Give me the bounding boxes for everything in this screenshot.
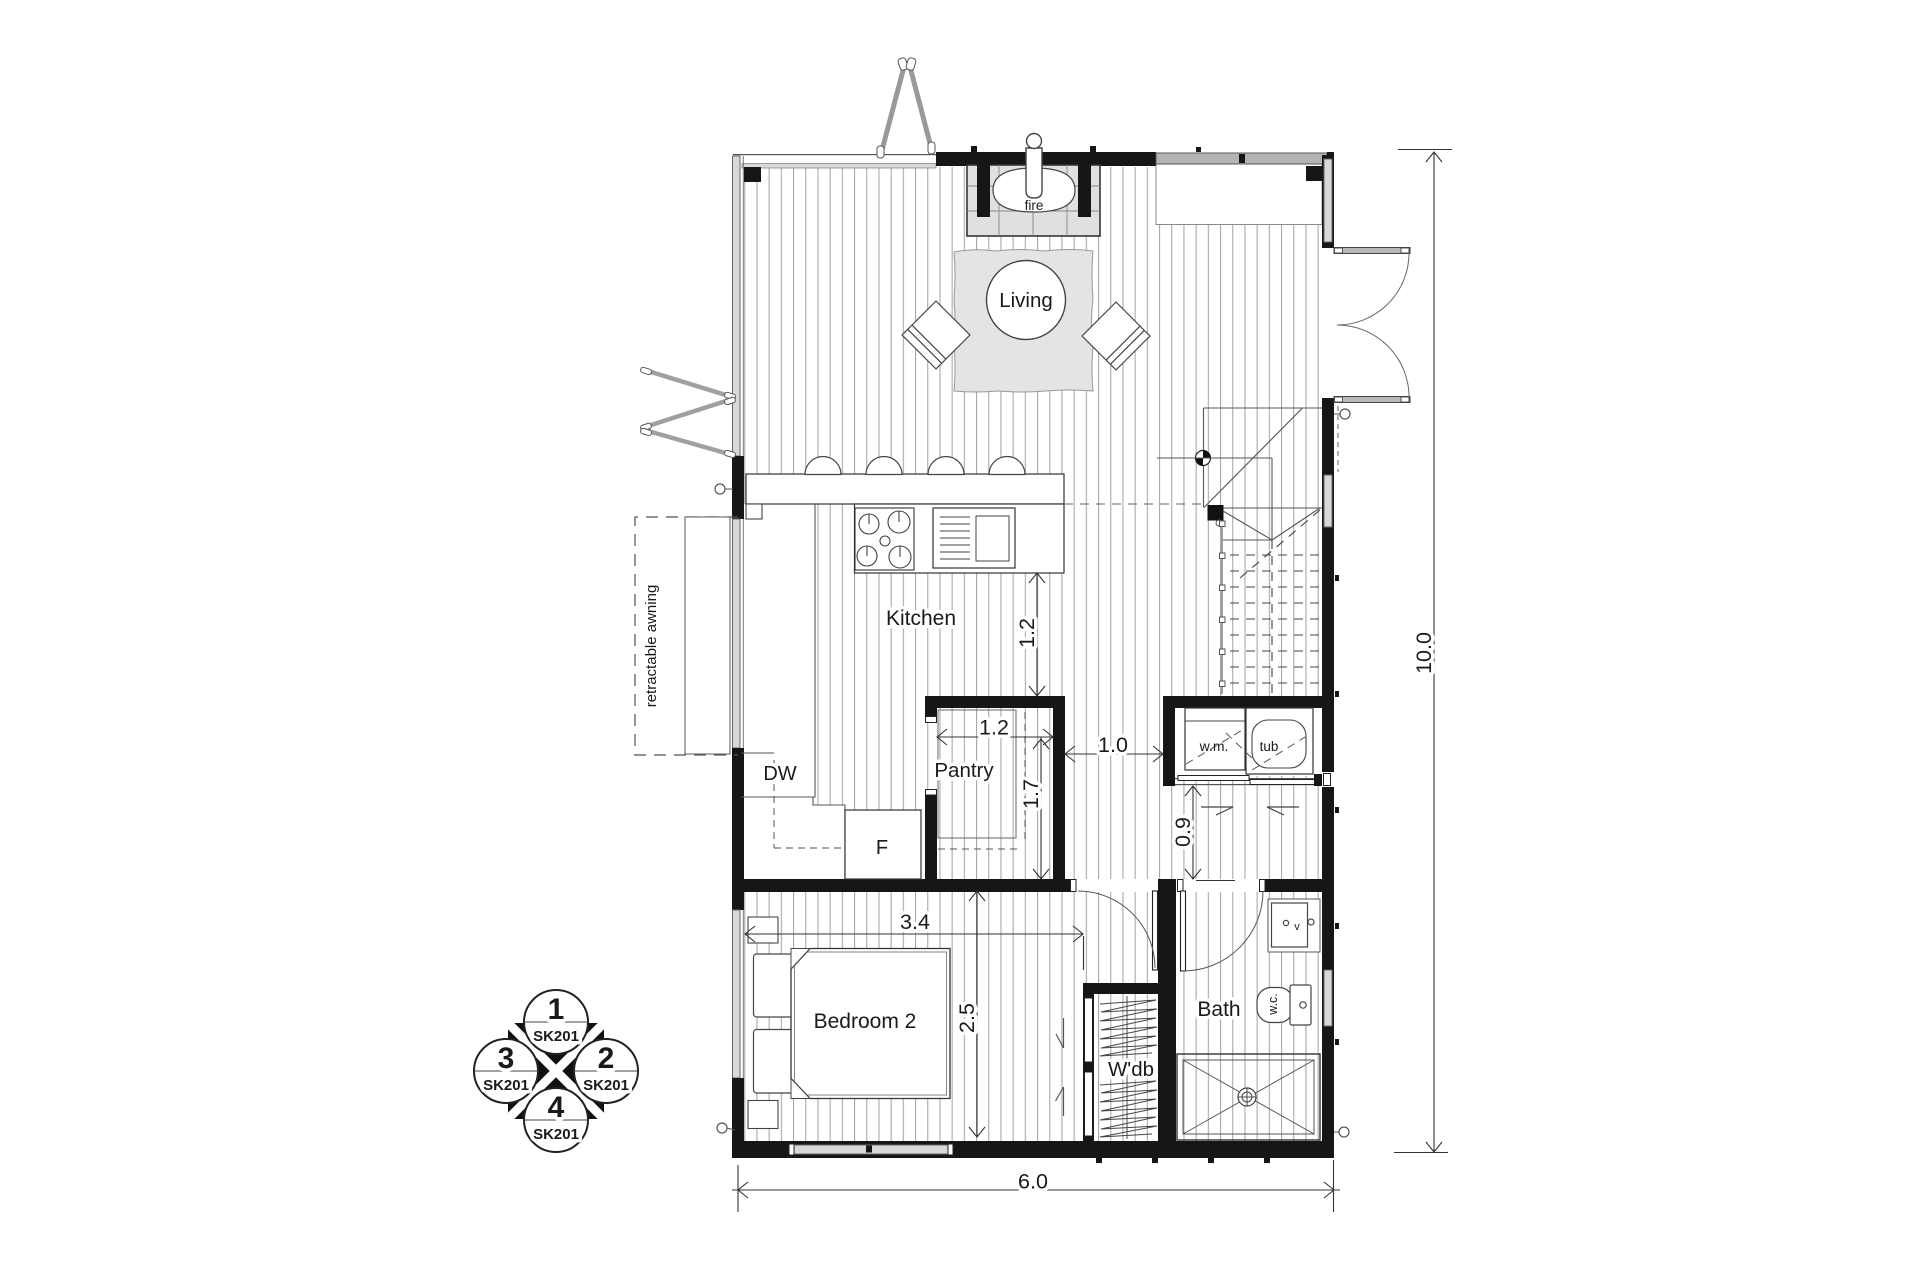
svg-text:fire: fire xyxy=(1025,198,1044,213)
svg-text:v: v xyxy=(1294,921,1300,933)
svg-text:1: 1 xyxy=(548,993,565,1026)
svg-text:3.4: 3.4 xyxy=(900,910,930,934)
svg-text:F: F xyxy=(876,837,888,859)
svg-text:DW: DW xyxy=(763,763,796,785)
svg-text:Kitchen: Kitchen xyxy=(886,607,956,630)
svg-text:SK201: SK201 xyxy=(533,1126,579,1143)
svg-text:4: 4 xyxy=(548,1091,565,1124)
svg-text:SK201: SK201 xyxy=(533,1028,579,1045)
svg-text:1.2: 1.2 xyxy=(979,716,1009,740)
svg-text:Pantry: Pantry xyxy=(934,759,994,782)
svg-text:tub: tub xyxy=(1260,739,1279,754)
svg-text:1.7: 1.7 xyxy=(1019,779,1043,809)
svg-text:w.m.: w.m. xyxy=(1199,738,1229,754)
svg-text:Living: Living xyxy=(999,289,1053,312)
svg-text:SK201: SK201 xyxy=(483,1077,529,1094)
svg-text:6.0: 6.0 xyxy=(1018,1170,1048,1194)
svg-text:10.0: 10.0 xyxy=(1412,632,1436,674)
svg-text:SK201: SK201 xyxy=(583,1077,629,1094)
svg-text:Bath: Bath xyxy=(1197,998,1240,1021)
svg-text:1.2: 1.2 xyxy=(1015,618,1039,648)
svg-text:1.0: 1.0 xyxy=(1098,733,1128,757)
svg-text:retractable awning: retractable awning xyxy=(643,585,660,708)
svg-text:w.c.: w.c. xyxy=(1266,993,1280,1016)
svg-text:Bedroom 2: Bedroom 2 xyxy=(814,1010,917,1033)
svg-text:0.9: 0.9 xyxy=(1171,817,1195,847)
svg-text:2.5: 2.5 xyxy=(955,1003,979,1033)
svg-text:3: 3 xyxy=(498,1042,515,1075)
svg-text:W'db: W'db xyxy=(1108,1058,1154,1081)
svg-text:2: 2 xyxy=(598,1042,615,1075)
